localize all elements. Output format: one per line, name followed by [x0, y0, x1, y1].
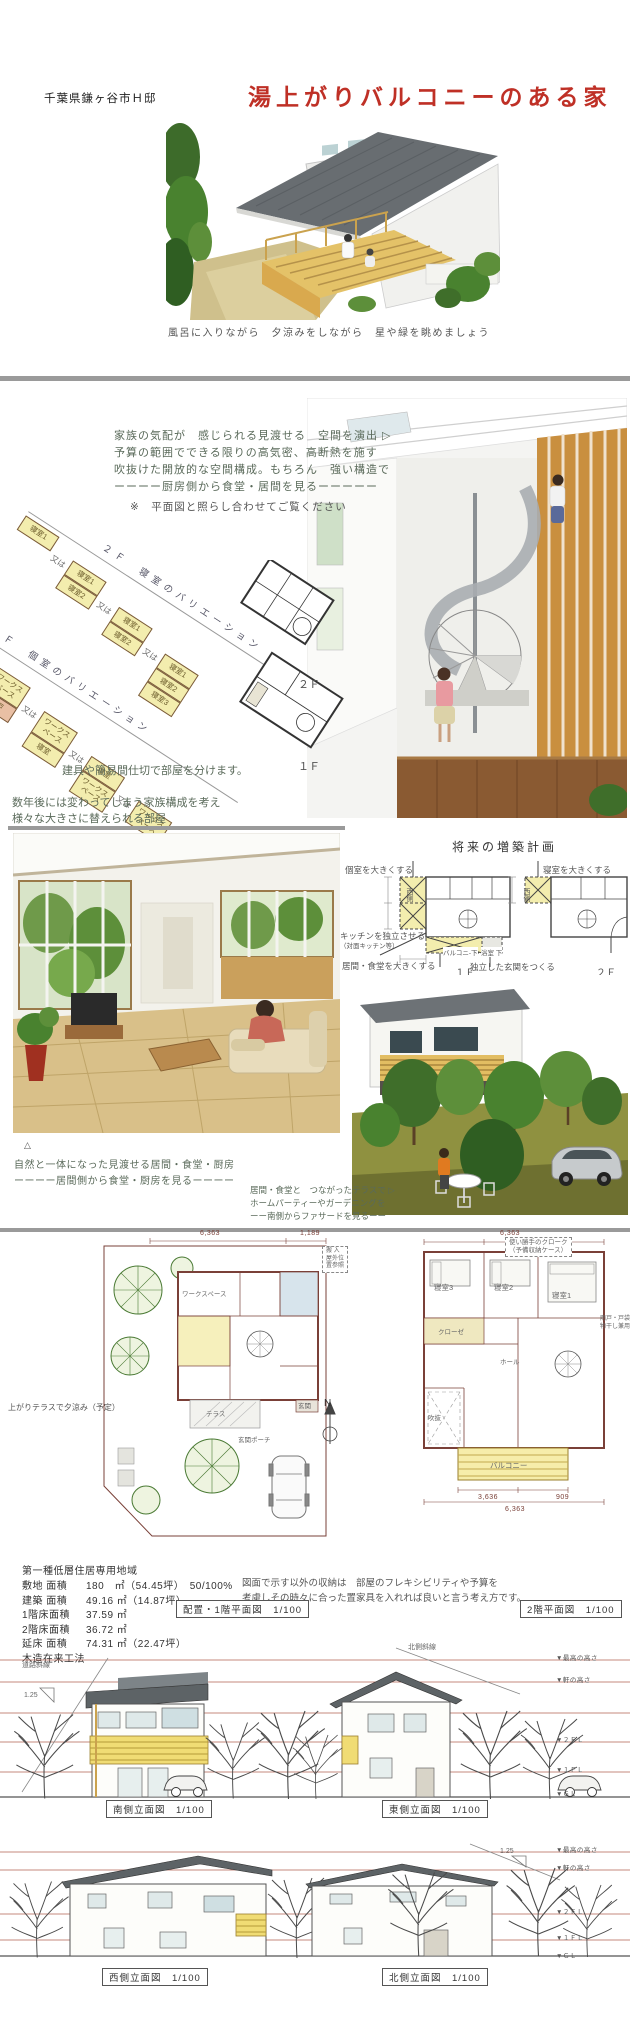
south-elevation-title: 南側立面図 1/100: [106, 1800, 212, 1818]
expand-right-side-label: 西側: [521, 888, 531, 902]
variation-caption-3: 様々な大きさに替えられる部屋: [12, 810, 166, 826]
north-elevation-title: 北側立面図 1/100: [382, 1968, 488, 1986]
room-label-hall: ホール: [500, 1356, 520, 1366]
room-label-balcony: バルコニー: [490, 1460, 527, 1471]
room-label-terrace: テラス: [206, 1408, 225, 1418]
west-elevation-house: [62, 1856, 272, 1956]
room-label-bed1: 寝室1: [552, 1290, 571, 1301]
delivery-note: 搬 入 屋外位 置参照: [322, 1246, 348, 1273]
plan2f-dim-b3: 6,363: [505, 1506, 525, 1513]
variation-group: 寝室1 寝室2 寝室3: [138, 654, 199, 718]
or-label: 又は: [48, 553, 67, 571]
east-elevation-house: [330, 1672, 462, 1797]
exterior-caption-3: ーー南側からファサードを見るーー: [250, 1210, 386, 1222]
room-label-entrance: 玄関: [298, 1400, 311, 1410]
room-label-void: 吹抜: [428, 1412, 441, 1422]
concept-line: 吹抜けた開放的な空間構成。もちろん 強い構造で: [114, 462, 392, 479]
living-render: [13, 833, 340, 1133]
tv-cabinet: [65, 993, 123, 1039]
level-label-2fl: ▼２ＦＬ: [556, 1734, 584, 1744]
expand-balcony-label: バルコニ-下: [443, 947, 478, 957]
left-window-wall: [19, 881, 131, 1009]
interior-caption-marker: △: [24, 1140, 31, 1151]
west-elevation-title: 西側立面図 1/100: [102, 1968, 208, 1986]
level-label-1fl-2: ▼１ＦＬ: [556, 1932, 584, 1942]
hero-render: [166, 112, 500, 320]
presentation-board: 千葉県鎌ヶ谷市Ｈ邸 湯上がりバルコニーのある家: [0, 0, 630, 2042]
hero-caption: 風呂に入りながら 夕涼みをしながら 星や緑を眺めましょう: [168, 324, 490, 339]
slope-ratio-north: 1.25: [500, 1848, 514, 1855]
concept-line: 予算の範囲でできる限りの高気密、高断熱を施す: [114, 445, 392, 462]
room-label-closet: クローゼ: [438, 1326, 464, 1336]
room-label-bed3: 寝室3: [434, 1282, 453, 1293]
shutter-note: 雨戸・戸袋 物干し兼用: [600, 1316, 630, 1332]
section-divider-2: [8, 826, 345, 830]
level-label-max-2: ▼最高の高さ: [556, 1844, 598, 1854]
level-label-eave-2: ▼軒の高さ: [556, 1862, 591, 1872]
zoning-label: 第一種低層住居専用地域: [22, 1562, 138, 1577]
expand-right-top-label: 寝室を大きくする: [543, 864, 611, 876]
plan2f-dim-top: 6,363: [500, 1230, 520, 1237]
room-label-workspace: ワークスペース: [182, 1288, 227, 1298]
level-label-1fl: ▼１ＦＬ: [556, 1764, 584, 1774]
or-label: 又は: [20, 703, 39, 721]
room-box: 寝室1: [17, 515, 60, 551]
variation-caption-2: 数年後には変わってしまう家族構成を考え: [12, 794, 220, 810]
plan-reference-note: ※ 平面図と照らし合わせてご覧ください: [130, 499, 347, 514]
exterior-caption-1: 居間・食堂と つながったテラスで ▷: [250, 1184, 395, 1196]
slope-ratio-south: 1.25: [24, 1692, 38, 1699]
page-title: 湯上がりバルコニーのある家: [248, 78, 612, 112]
expand-left-top-label: 個室を大きくする: [345, 864, 413, 876]
location-label: 千葉県鎌ヶ谷市Ｈ邸: [44, 90, 157, 106]
level-label-gl-2: ▼ＧＬ: [556, 1950, 577, 1960]
concept-line: ーーーー厨房側から食堂・居間を見るーーーーー: [114, 479, 392, 496]
level-label-max: ▼最高の高さ: [556, 1652, 598, 1662]
expand-left-side-label: 西側: [404, 888, 414, 902]
parking-car: [269, 1456, 309, 1518]
site-data-row: 2階床面積36.72 ㎡: [22, 1624, 233, 1639]
exterior-render: [352, 975, 628, 1215]
expand-bath-label: 浴室 下: [481, 947, 502, 957]
key-1f-label: １Ｆ: [298, 758, 320, 774]
plan2-title-box: 2階平面図 1/100: [520, 1600, 622, 1618]
concept-text: 家族の気配が 感じられる見渡せる 空間を演出 ▷ 予算の範囲でできる限りの高気密…: [114, 428, 392, 496]
closet-note: 使い勝手のクローク （予備収納ケース）: [505, 1237, 572, 1257]
hand-note: 上がりテラスで夕涼み（予定）: [8, 1402, 120, 1413]
or-label: 又は: [140, 646, 159, 664]
road-slope-label: 道路斜線: [22, 1660, 50, 1670]
key-2f-label: ２Ｆ: [298, 676, 320, 692]
plan2f-dim-b2: 909: [556, 1494, 569, 1501]
concept-line: 家族の気配が 感じられる見渡せる 空間を演出 ▷: [114, 428, 392, 445]
section-divider-1: [0, 376, 630, 381]
level-label-eave: ▼軒の高さ: [556, 1674, 591, 1684]
right-window-band: [221, 891, 333, 957]
plan1-title-box: 配置・1階平面図 1/100: [176, 1600, 309, 1618]
interior-caption-2: ーーーー居間側から食堂・厨房を見るーーーー: [14, 1172, 235, 1187]
variation-caption-1: 建具や簡易間仕切で部屋を分けます。: [62, 762, 248, 778]
or-label: 又は: [94, 599, 113, 617]
interior-caption-1: 自然と一体になった見渡せる居間・食堂・厨房: [14, 1156, 235, 1171]
future-plan-title: 将来の増築計画: [452, 838, 557, 855]
site-dim-top-1: 6,363: [200, 1230, 220, 1237]
exterior-caption-2: ホームパーティーやガーデニングを: [250, 1197, 385, 1209]
variation-group: 寝室1: [17, 515, 60, 551]
site-data-row: 敷地 面積180 ㎡（54.45坪） 50/100%: [22, 1580, 233, 1595]
room-label-porch: 玄関ポーチ: [238, 1434, 271, 1444]
level-label-2fl-2: ▼２ＦＬ: [556, 1906, 584, 1916]
elevation-row-south-east: [0, 1640, 630, 1812]
level-label-gl: ▼ＧＬ: [556, 1788, 577, 1798]
north-elevation-house: [306, 1864, 498, 1956]
expand-left-bottom-label: 居間・食堂を大きくする: [342, 960, 436, 972]
plan2f-dim-b1: 3,636: [478, 1494, 498, 1501]
north-slope-label: 北側斜線: [408, 1642, 436, 1652]
site-plan-drawing: [90, 1238, 340, 1558]
east-elevation-title: 東側立面図 1/100: [382, 1800, 488, 1818]
expand-entrance-label: 独立した玄関をつくる: [470, 961, 555, 973]
north-letter: N: [324, 1398, 331, 1409]
site-dim-top-2: 1,189: [300, 1230, 320, 1237]
room-label-bed2: 寝室2: [494, 1282, 513, 1293]
expand-left-kitchen-label-2: （対面キッチン等）: [340, 940, 399, 950]
elevation-row-west-north: [0, 1836, 630, 1986]
